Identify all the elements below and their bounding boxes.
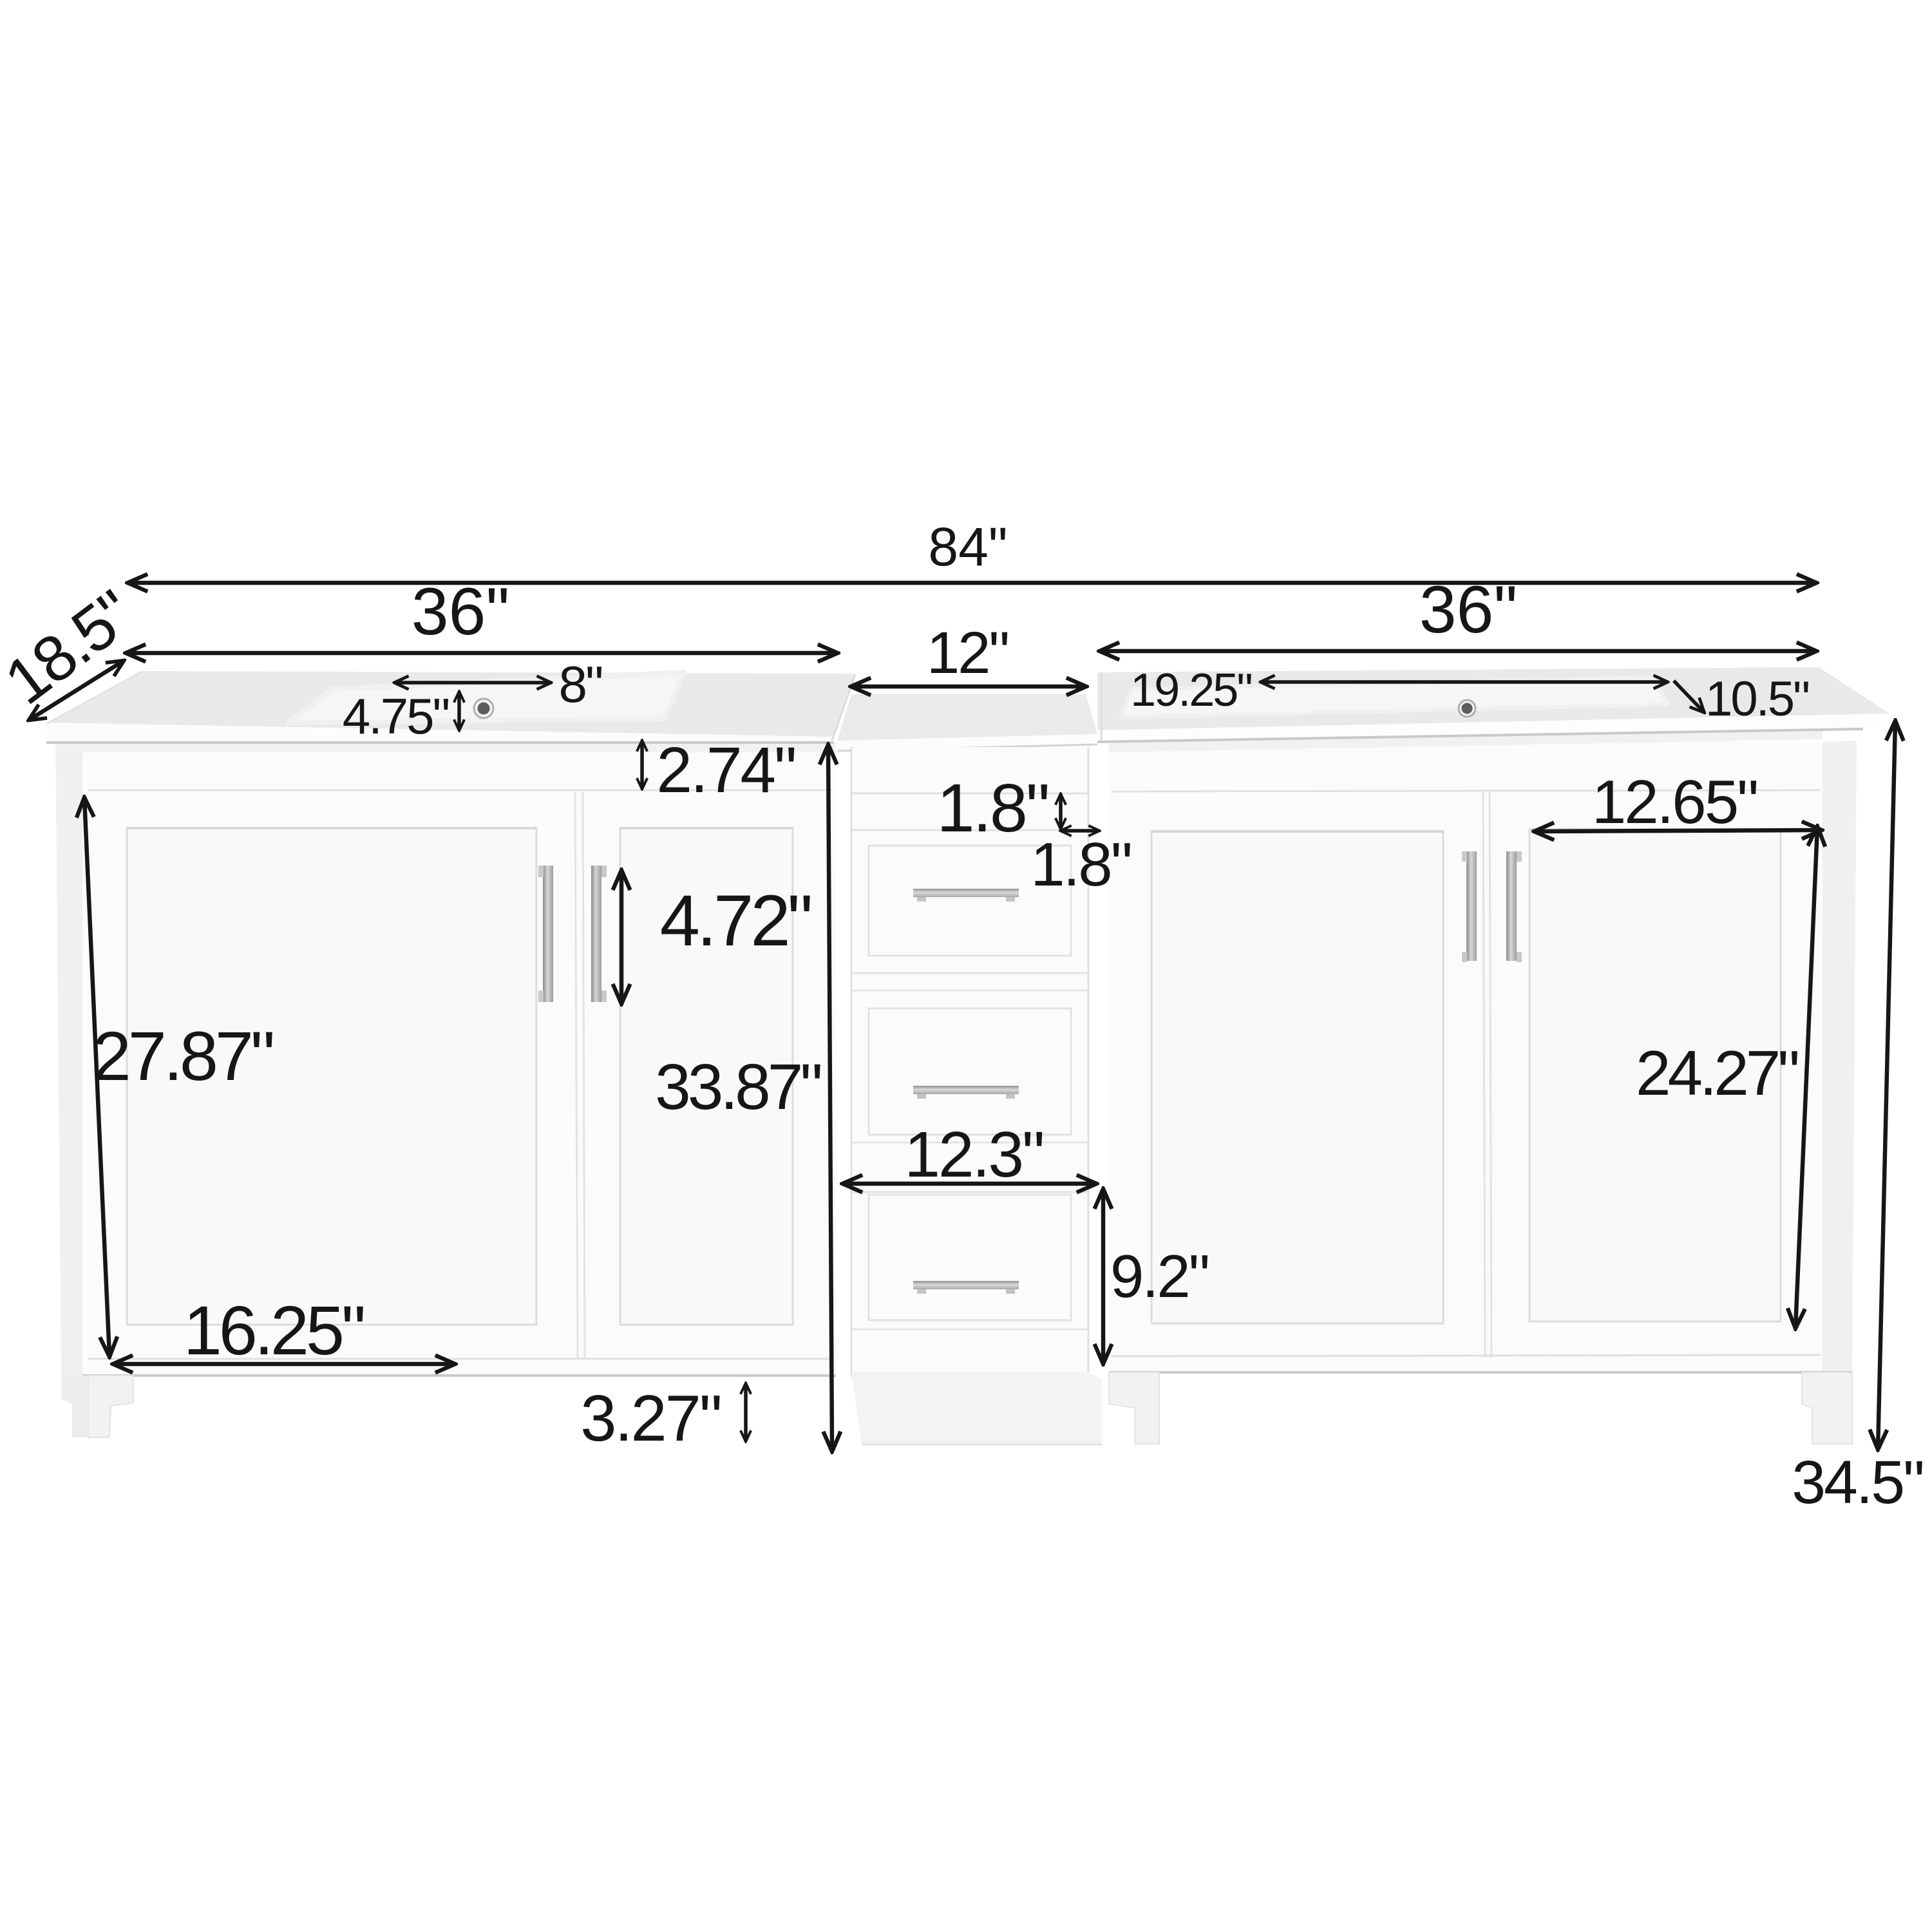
svg-text:4.75": 4.75" [343,688,449,744]
svg-text:24.27": 24.27" [1636,1037,1797,1108]
svg-text:84": 84" [928,516,1007,577]
svg-text:12.65": 12.65" [1592,768,1757,837]
svg-text:19.25": 19.25" [1130,665,1251,716]
svg-text:12.3": 12.3" [904,1119,1043,1191]
svg-text:12": 12" [927,620,1008,686]
svg-text:2.74": 2.74" [656,734,795,806]
svg-text:4.72": 4.72" [660,880,810,961]
svg-text:8": 8" [559,656,602,713]
svg-text:36": 36" [412,574,510,649]
svg-text:9.2": 9.2" [1110,1242,1208,1310]
svg-text:33.87": 33.87" [655,1051,820,1123]
svg-text:3.27": 3.27" [580,1383,720,1455]
svg-text:27.87": 27.87" [93,1017,272,1095]
svg-text:1.8": 1.8" [1030,830,1131,899]
svg-text:16.25": 16.25" [184,1291,363,1369]
svg-text:34.5": 34.5" [1792,1448,1923,1517]
svg-text:10.5": 10.5" [1705,672,1808,726]
svg-text:36": 36" [1419,573,1518,647]
